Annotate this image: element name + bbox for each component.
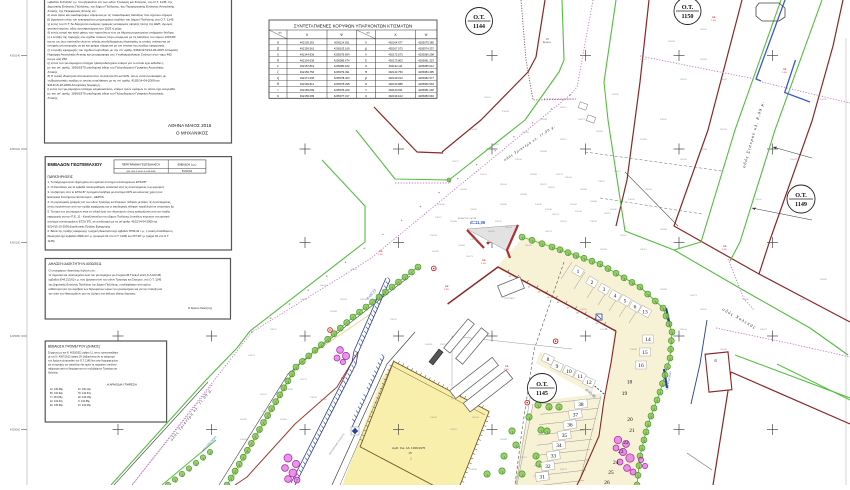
svg-text:22: 22 <box>623 440 629 446</box>
svg-text:135.04: 135.04 <box>505 227 512 229</box>
svg-text:όπως προκύπτουν από την πράξη: όπως προκύπτουν από την πράξη εφαρμογής … <box>48 205 175 209</box>
svg-text:134.69: 134.69 <box>458 245 465 247</box>
svg-text:492172.673: 492172.673 <box>388 52 403 56</box>
svg-text:2.5Ω: 2.5Ω <box>378 254 383 256</box>
svg-text:26: 26 <box>604 480 610 485</box>
svg-text:134.96: 134.96 <box>610 209 617 211</box>
svg-text:134.73: 134.73 <box>800 299 807 301</box>
svg-text:1. Το διάγραμμα είναι εξηρτη: 1. Το διάγραμμα είναι εξηρτημένο στο κρα… <box>48 180 148 184</box>
svg-text:134.85: 134.85 <box>320 399 327 401</box>
svg-text:134.91: 134.91 <box>320 285 327 287</box>
svg-text:134.91: 134.91 <box>628 199 635 201</box>
svg-text:1145: 1145 <box>536 390 548 397</box>
svg-text:134.96: 134.96 <box>742 299 749 301</box>
svg-text:18: 18 <box>627 380 633 386</box>
svg-text:ΔΕ: ΔΕ <box>341 376 345 380</box>
svg-text:1150: 1150 <box>681 13 693 20</box>
svg-text:Νομάρχη Ανατολικής Αττικής και: Νομάρχη Ανατολικής Αττικής και μεταγράφη… <box>48 52 173 56</box>
svg-text:12: 12 <box>586 380 592 386</box>
svg-text:492159.561: 492159.561 <box>300 46 315 50</box>
svg-text:134.69: 134.69 <box>502 111 509 113</box>
svg-text:ΑΣΦΑΛΤΟΣ - ΔΡΟΜ: ΑΣΦΑΛΤΟΣ - ΔΡΟΜ <box>458 217 477 220</box>
svg-text:Ελληνικού Συστήματος Εντοπισμο: Ελληνικού Συστήματος Εντοπισμού - HEPOS <box>48 195 104 199</box>
svg-text:134.85: 134.85 <box>640 139 647 141</box>
svg-text:τα αγροτικά και υλοποιημένα όρ: τα αγροτικά και υλοποιημένα όρια του γεω… <box>49 273 162 277</box>
svg-text:Ο.Τ.: Ο.Τ. <box>536 381 548 388</box>
svg-text:4205082.593: 4205082.593 <box>418 82 434 86</box>
svg-text:2.5Ω: 2.5Ω <box>444 289 449 291</box>
svg-text:Ζ= 130.10μ: Ζ= 130.10μ <box>78 388 91 391</box>
svg-text:31: 31 <box>540 474 546 480</box>
svg-text:38: 38 <box>578 402 584 408</box>
svg-text:134.91: 134.91 <box>492 144 499 146</box>
svg-text:135.01: 135.01 <box>495 221 502 223</box>
svg-text:21: 21 <box>629 428 635 434</box>
svg-text:492157.819: 492157.819 <box>300 64 315 68</box>
svg-text:ιδιοκτησία έχει εμβαδόν 6606,4: ιδιοκτησία έχει εμβαδόν 6606,44 τ.μ. (ει… <box>48 234 170 238</box>
svg-text:134.88: 134.88 <box>540 119 547 121</box>
svg-text:ΔΕ: ΔΕ <box>482 258 486 262</box>
svg-text:135.04: 135.04 <box>680 329 687 331</box>
svg-text:134.88: 134.88 <box>425 344 432 346</box>
svg-text:1144: 1144 <box>473 23 485 30</box>
svg-text:134.92: 134.92 <box>432 251 439 253</box>
svg-text:134.88: 134.88 <box>520 194 527 196</box>
svg-text:ΑΘΗΝΑ ΜΑΙΟΣ 2015: ΑΘΗΝΑ ΜΑΙΟΣ 2015 <box>168 123 212 128</box>
svg-text:4205080: 4205080 <box>10 334 21 338</box>
svg-text:135.01: 135.01 <box>680 79 687 81</box>
svg-text:16: 16 <box>638 363 644 369</box>
svg-text:19: 19 <box>622 391 628 397</box>
svg-text:εμβαδού Ε=8.213,62 τ.μ. που βρ: εμβαδού Ε=8.213,62 τ.μ. που βρίσκεται επ… <box>49 278 162 282</box>
svg-text:492139.281: 492139.281 <box>300 40 315 44</box>
svg-text:20: 20 <box>627 417 633 423</box>
svg-text:με την υπ' αριθμ. 1926/1975 οι: με την υπ' αριθμ. 1926/1975 οικοδομική ά… <box>48 66 165 70</box>
svg-text:134.91: 134.91 <box>450 429 457 431</box>
svg-text:492164.977: 492164.977 <box>388 40 403 44</box>
svg-text:134.91: 134.91 <box>488 231 495 233</box>
svg-text:134.88: 134.88 <box>330 311 337 313</box>
svg-text:εφαρμογής για την Π.Ε. 11 - Κα: εφαρμογής για την Π.Ε. 11 - Κανελλοπούλο… <box>48 215 170 219</box>
svg-text:134.73: 134.73 <box>690 295 697 297</box>
svg-text:4205100: 4205100 <box>10 241 21 245</box>
svg-text:υποχρέωση εισφοράς σε γη και χ: υποχρέωση εισφοράς σε γη και χρήμα σύμφω… <box>48 44 165 48</box>
svg-text:5: 5 <box>624 299 627 305</box>
svg-text:Ο.Τ.: Ο.Τ. <box>473 14 485 21</box>
svg-text:134.92: 134.92 <box>240 419 247 421</box>
svg-text:492134.636: 492134.636 <box>300 58 315 62</box>
svg-text:134.69: 134.69 <box>240 439 247 441</box>
svg-text:2.5Ω: 2.5Ω <box>340 381 345 383</box>
svg-text:134.92: 134.92 <box>820 99 827 101</box>
svg-text:134.88: 134.88 <box>590 201 597 203</box>
svg-text:ΔΗΛΩΣΗ ΙΔΙΟΚΤΗΤΗ Ν.4030/2011: ΔΗΛΩΣΗ ΙΔΙΟΚΤΗΤΗ Ν.4030/2011 <box>49 262 102 266</box>
svg-text:135.04: 135.04 <box>645 189 652 191</box>
svg-text:134.69: 134.69 <box>630 349 637 351</box>
svg-text:134.96: 134.96 <box>470 129 477 131</box>
svg-text:134.69: 134.69 <box>700 59 707 61</box>
svg-text:2.5Ω: 2.5Ω <box>504 369 509 371</box>
svg-text:134.88: 134.88 <box>500 439 507 441</box>
svg-text:μ: μ <box>365 46 367 50</box>
svg-text:135.01: 135.01 <box>525 245 532 247</box>
svg-text:492139.613: 492139.613 <box>388 76 403 80</box>
svg-text:135.01: 135.01 <box>600 329 607 331</box>
svg-text:4205075.298: 4205075.298 <box>334 82 350 86</box>
svg-text:492171.606: 492171.606 <box>300 76 315 80</box>
svg-text:24: 24 <box>613 460 619 466</box>
svg-text:4205079.491: 4205079.491 <box>334 70 350 74</box>
svg-text:134.69: 134.69 <box>668 41 675 43</box>
svg-text:σύστημα συντεταγμένων ΕΓΣΑ '87: σύστημα συντεταγμένων ΕΓΣΑ '87), σε συνδ… <box>48 219 158 223</box>
svg-text:135.12: 135.12 <box>560 139 567 141</box>
svg-text:ΔΕ: ΔΕ <box>505 364 509 368</box>
svg-text:β) βρίσκεται εντός του εγκεκρι: β) βρίσκεται εντός του εγκεκριμένου ρυμο… <box>48 18 174 22</box>
svg-text:ΠΕΡΙΓΡΑΜΜΑ ΓΕΩΤΕΜΑΧΙΟΥ: ΠΕΡΙΓΡΑΜΜΑ ΓΕΩΤΕΜΑΧΙΟΥ <box>122 162 161 166</box>
svg-text:134.91: 134.91 <box>720 129 727 131</box>
svg-text:4205077.317: 4205077.317 <box>334 94 350 98</box>
svg-text:134.85: 134.85 <box>470 209 477 211</box>
svg-text:134.92: 134.92 <box>430 235 437 237</box>
svg-text:ΔΕ: ΔΕ <box>379 249 383 253</box>
svg-text:15: 15 <box>642 350 648 356</box>
svg-text:9214/15-10-2009 Αποφάσεις Νομά: 9214/15-10-2009 Αποφάσεις Νομάρχη. <box>48 83 101 87</box>
svg-text:492143.750: 492143.750 <box>388 70 403 74</box>
svg-text:134.91: 134.91 <box>480 174 487 176</box>
svg-text:Ε= 135.96μ: Ε= 135.96μ <box>50 404 63 407</box>
svg-text:6. Βάσει της πράξης εφαρμογή: 6. Βάσει της πράξης εφαρμογής η αρχική ι… <box>48 229 173 233</box>
svg-text:ΠΑΡΑΤΗΡΗΣΕΙΣ: ΠΑΡΑΤΗΡΗΣΕΙΣ <box>48 175 73 179</box>
svg-text:134.88: 134.88 <box>660 229 667 231</box>
svg-text:Ερμίων: Ερμίων <box>543 41 552 44</box>
svg-text:της Δημοτικής Ενότητας Παλλήνη: της Δημοτικής Ενότητας Παλλήνης του Δήμο… <box>49 282 152 286</box>
svg-text:134.85: 134.85 <box>500 204 507 206</box>
svg-text:Σύμφωνα με τον Ν. 4030/2011 άρ: Σύμφωνα με τον Ν. 4030/2011 άρθρο 11, όπ… <box>48 352 119 355</box>
svg-text:1: 1 <box>577 269 580 275</box>
svg-text:2. Οι διαστάσεις και τα εμβα: 2. Οι διαστάσεις και τα εμβαδά υπολογίσθ… <box>48 185 165 189</box>
svg-text:4205060: 4205060 <box>10 428 21 432</box>
svg-text:ΔΕ: ΔΕ <box>445 284 449 288</box>
svg-text:134.92: 134.92 <box>720 79 727 81</box>
svg-text:134.73: 134.73 <box>466 256 473 258</box>
svg-text:4205140: 4205140 <box>10 54 21 58</box>
svg-text:134.96: 134.96 <box>470 239 477 241</box>
svg-text:134.91: 134.91 <box>560 221 567 223</box>
svg-text:4205120: 4205120 <box>10 147 21 151</box>
svg-text:8.213,62: 8.213,62 <box>182 169 193 173</box>
svg-text:3: 3 <box>603 287 606 293</box>
svg-text:135.01: 135.01 <box>484 97 491 99</box>
svg-text:135.12: 135.12 <box>440 344 447 346</box>
svg-text:σ: σ <box>365 82 367 86</box>
svg-text:β: β <box>277 46 279 50</box>
svg-text:492173.803: 492173.803 <box>388 58 403 62</box>
svg-text:134.88: 134.88 <box>540 151 547 153</box>
svg-text:135.04: 135.04 <box>472 417 479 419</box>
svg-text:Α= 130.68μ: Α= 130.68μ <box>50 388 63 391</box>
svg-text:134.73: 134.73 <box>556 174 563 176</box>
svg-text:135.04: 135.04 <box>680 159 687 161</box>
svg-text:4205078.403: 4205078.403 <box>334 76 350 80</box>
svg-text:134.96: 134.96 <box>700 149 707 151</box>
svg-text:4205114.051: 4205114.051 <box>334 40 350 44</box>
svg-text:135.12: 135.12 <box>604 213 611 215</box>
svg-text:135.04: 135.04 <box>575 211 582 213</box>
svg-text:Δημοτικής Ενότητας Παλλήνης, τ: Δημοτικής Ενότητας Παλλήνης, του Δήμου Π… <box>48 5 175 9</box>
svg-text:134.96: 134.96 <box>300 299 307 301</box>
svg-text:3. Η εξάρτηση από το ΕΓΣΑ 87: 3. Η εξάρτηση από το ΕΓΣΑ 87 πραγματοποι… <box>48 190 163 194</box>
svg-text:32: 32 <box>545 464 551 470</box>
svg-text:134.73: 134.73 <box>578 119 585 121</box>
svg-text:ΕΜΒΑΔΟΝ ΓΕΩΤΕΜΑΧΙΟΥ: ΕΜΒΑΔΟΝ ΓΕΩΤΕΜΑΧΙΟΥ <box>48 162 103 167</box>
svg-text:134.85: 134.85 <box>820 279 827 281</box>
svg-text:34: 34 <box>556 443 562 449</box>
svg-text:και οι κορυφές του οικοπέδου θ: και οι κορυφές του οικοπέδου θα έχουν τα… <box>48 364 117 367</box>
svg-text:135.01: 135.01 <box>755 199 762 201</box>
svg-text:α: α <box>277 40 279 44</box>
svg-text:ΔΕ: ΔΕ <box>783 67 787 71</box>
svg-text:23: 23 <box>618 449 624 455</box>
svg-text:134.85: 134.85 <box>660 289 667 291</box>
svg-text:135.12: 135.12 <box>760 329 767 331</box>
svg-text:6: 6 <box>634 305 637 311</box>
svg-text:135.01: 135.01 <box>262 411 269 413</box>
svg-text:134.92: 134.92 <box>310 397 317 399</box>
svg-text:135.12: 135.12 <box>520 457 527 459</box>
svg-text:492133.811: 492133.811 <box>389 88 404 92</box>
svg-text:4205085.674: 4205085.674 <box>334 58 350 62</box>
svg-text:134.85: 134.85 <box>596 131 603 133</box>
svg-text:την αιτία των δικαιωμάτων μου: την αιτία των δικαιωμάτων μου να ζητήσω … <box>49 292 137 296</box>
svg-text:134.85: 134.85 <box>535 204 542 206</box>
svg-text:καθιστώμαι για την ακρίβεια τω: καθιστώμαι για την ακρίβεια των δηλουμέν… <box>49 287 163 291</box>
svg-text:2.5Ω: 2.5Ω <box>711 20 716 22</box>
svg-text:36: 36 <box>567 423 573 429</box>
svg-text:134.96: 134.96 <box>460 189 467 191</box>
svg-text:ΔΕ: ΔΕ <box>723 244 727 248</box>
svg-text:492144.836: 492144.836 <box>300 52 315 56</box>
svg-text:134.69: 134.69 <box>790 159 797 161</box>
svg-text:9: 9 <box>556 364 559 370</box>
svg-text:υψόμετρα κατά τη διαμόρφωση τω: υψόμετρα κατά τη διαμόρφωση των πεζοδρόμ… <box>48 368 117 371</box>
svg-text:25: 25 <box>608 470 614 476</box>
svg-text:135.04: 135.04 <box>350 269 357 271</box>
svg-text:η) εντός του γεωτεμαχίου υπάρχ: η) εντός του γεωτεμαχίου υπάρχει ηλεκτρο… <box>48 61 164 65</box>
svg-text:492169.756: 492169.756 <box>300 70 315 74</box>
svg-text:135.01: 135.01 <box>552 214 559 216</box>
svg-text:134.92: 134.92 <box>620 235 627 237</box>
svg-text:135.04: 135.04 <box>515 159 522 161</box>
svg-text:4205082.577: 4205082.577 <box>418 76 434 80</box>
svg-text:134.69: 134.69 <box>570 204 577 206</box>
svg-text:υ: υ <box>365 94 367 98</box>
svg-text:134.73: 134.73 <box>248 355 255 357</box>
svg-text:134.69: 134.69 <box>600 249 607 251</box>
svg-text:4. Οι ρυμοτομικές γραμμές επ: 4. Οι ρυμοτομικές γραμμές επί των οδών Τ… <box>48 200 172 204</box>
svg-text:η: η <box>277 76 279 80</box>
svg-text:492156.099: 492156.099 <box>300 94 315 98</box>
svg-text:των δρόμων έμπροσθεν του Ο.Τ.: των δρόμων έμπροσθεν του Ο.Τ. 1145 δεν ε… <box>48 360 118 363</box>
svg-text:4205074.337: 4205074.337 <box>418 46 434 50</box>
svg-text:134.88: 134.88 <box>720 349 727 351</box>
svg-text:134.91: 134.91 <box>700 309 707 311</box>
svg-text:ΥΠΟΣΤΕΓΟ: ΥΠΟΣΤΕΓΟ <box>504 298 515 300</box>
svg-text:492132.111: 492132.111 <box>389 64 403 68</box>
svg-text:492159.099: 492159.099 <box>300 88 315 92</box>
svg-text:134.88: 134.88 <box>450 221 457 223</box>
svg-text:134.73: 134.73 <box>614 171 621 173</box>
svg-text:Αττικής.: Αττικής. <box>48 96 59 100</box>
svg-text:9214/15-10-2009 Διορθωτικές Πρ: 9214/15-10-2009 Διορθωτικές Πράξεις Εφαρ… <box>48 224 111 228</box>
svg-text:492169.814: 492169.814 <box>300 82 315 86</box>
svg-text:135.01: 135.01 <box>260 394 267 396</box>
svg-text:33: 33 <box>551 454 557 460</box>
svg-text:4205080.298: 4205080.298 <box>418 52 434 56</box>
svg-text:5. Τα όρια των γεωτεμαχίων ε: 5. Τα όρια των γεωτεμαχίων είναι τα τελι… <box>48 210 171 214</box>
svg-text:Ι= 134.86μ: Ι= 134.86μ <box>78 400 90 403</box>
svg-text:4205075.385: 4205075.385 <box>418 40 434 44</box>
svg-text:4205103.169: 4205103.169 <box>334 46 350 50</box>
svg-text:1145).: 1145). <box>48 239 56 243</box>
svg-text:135.01: 135.01 <box>640 59 647 61</box>
svg-text:134.85: 134.85 <box>286 389 293 391</box>
svg-text:θ) Η τελική ιδιοκτησία αποτελε: θ) Η τελική ιδιοκτησία αποτελείται από τ… <box>48 74 167 78</box>
svg-text:ρ: ρ <box>365 76 367 80</box>
svg-text:135.12: 135.12 <box>540 184 547 186</box>
svg-text:135.12: 135.12 <box>435 217 442 219</box>
svg-text:135.01: 135.01 <box>660 119 667 121</box>
svg-text:4205076.229: 4205076.229 <box>334 88 350 92</box>
svg-text:135.12: 135.12 <box>270 329 277 331</box>
svg-text:134.96: 134.96 <box>530 174 537 176</box>
svg-text:135.04: 135.04 <box>500 184 507 186</box>
svg-text:8: 8 <box>547 357 550 363</box>
svg-text:11: 11 <box>577 374 582 380</box>
svg-text:Η ΑΡΜΟΔΙΑ ΥΠΗΡΕΣΙΑ: Η ΑΡΜΟΔΙΑ ΥΠΗΡΕΣΙΑ <box>107 383 137 387</box>
svg-text:με τον Ν. 4067/2012 άρθρο 29,: με τον Ν. 4067/2012 άρθρο 29, βεβαιώνετα… <box>48 356 115 359</box>
svg-text:d=11,06: d=11,06 <box>470 220 486 225</box>
svg-text:10: 10 <box>566 369 572 375</box>
svg-text:4205084.395: 4205084.395 <box>418 70 434 74</box>
svg-text:134.85: 134.85 <box>470 469 477 471</box>
svg-text:134.69: 134.69 <box>438 204 445 206</box>
svg-text:Ο υπογράφων ιδιοκτήτης δηλώνω: Ο υπογράφων ιδιοκτήτης δηλώνω ότι : <box>49 269 97 273</box>
svg-text:α) είναι άρτιο και οικοδομήσιμ: α) είναι άρτιο και οικοδομήσιμο σύμφωνα … <box>48 13 173 17</box>
svg-text:134.96: 134.96 <box>430 417 437 419</box>
svg-text:13: 13 <box>642 310 648 316</box>
svg-text:134.88: 134.88 <box>580 189 587 191</box>
svg-text:135.12: 135.12 <box>640 249 647 251</box>
svg-text:2: 2 <box>591 280 594 286</box>
svg-text:ΔΕ: ΔΕ <box>712 15 716 19</box>
svg-text:δ: δ <box>277 58 279 62</box>
svg-text:4205080.642: 4205080.642 <box>334 64 350 68</box>
svg-text:4205081.323: 4205081.323 <box>418 58 434 62</box>
svg-text:Θ= 134.45μ: Θ= 134.45μ <box>78 396 92 399</box>
svg-text:ΣΥΝΤΕΤΑΓΜΕΝΕΣ ΚΟΡΥΦΩΝ ΥΠΑΡΧΟΝΤ: ΣΥΝΤΕΤΑΓΜΕΝΕΣ ΚΟΡΥΦΩΝ ΥΠΑΡΧΟΝΤΩΝ ΚΤΙΣΜΑΤ… <box>294 23 412 28</box>
svg-text:ο: ο <box>365 64 367 68</box>
svg-text:492133.888: 492133.888 <box>388 82 403 86</box>
svg-text:φυσικού αερίου, οδός προϋφιστά: φυσικού αερίου, οδός προϋφιστάμενη του 1… <box>48 26 123 30</box>
svg-text:(Β-Γ-Δ-Ε-Ζ-Η-Θ-Ι-Κ-Λ-Μ-Ν-Β): (Β-Γ-Δ-Ε-Ζ-Η-Θ-Ι-Κ-Λ-Μ-Ν-Β) <box>127 170 156 173</box>
svg-text:Ο.Τ.: Ο.Τ. <box>682 4 694 11</box>
svg-text:134.91: 134.91 <box>390 319 397 321</box>
svg-text:4205085.012: 4205085.012 <box>418 64 434 68</box>
svg-text:4205081.248: 4205081.248 <box>418 88 434 92</box>
svg-text:Δ= 134.67μ: Δ= 134.67μ <box>50 400 63 403</box>
svg-text:2.5Ω: 2.5Ω <box>722 249 727 251</box>
svg-text:Ψ: Ψ <box>425 33 428 37</box>
svg-text:134.92: 134.92 <box>590 221 597 223</box>
svg-text:Ο ΜΗΧΑΝΙΚΟΣ: Ο ΜΗΧΑΝΙΚΟΣ <box>176 131 208 136</box>
svg-text:1149: 1149 <box>795 201 807 208</box>
svg-text:134.91: 134.91 <box>548 187 555 189</box>
svg-text:134.92: 134.92 <box>580 309 587 311</box>
svg-text:Β= 132.92μ: Β= 132.92μ <box>50 392 63 395</box>
svg-text:1Π: 1Π <box>408 451 411 455</box>
svg-text:134.73: 134.73 <box>300 379 307 381</box>
svg-text:4205083.694: 4205083.694 <box>418 94 434 98</box>
svg-text:2.5Ω: 2.5Ω <box>782 72 787 74</box>
svg-text:Γ= 133.65μ: Γ= 133.65μ <box>50 396 63 399</box>
svg-text:492139.102: 492139.102 <box>388 94 403 98</box>
svg-text:θ: θ <box>277 82 279 86</box>
svg-text:134.73: 134.73 <box>545 231 552 233</box>
svg-text:ΒΕΒΑΙΩΣΗ ΥΨΟΜΕΤΡΟΥ (ΔΗΜΟΣ): ΒΕΒΑΙΩΣΗ ΥΨΟΜΕΤΡΟΥ (ΔΗΜΟΣ) <box>48 345 100 349</box>
svg-text:135.12: 135.12 <box>598 181 605 183</box>
svg-text:Ψ: Ψ <box>340 33 343 37</box>
svg-text:134.92: 134.92 <box>612 94 619 96</box>
svg-text:ΕΜΒΑΔΟΝ (τ.μ.): ΕΜΒΑΔΟΝ (τ.μ.) <box>178 163 197 166</box>
svg-text:Αριθ. Οικ. Αδ. 1936/1975: Αριθ. Οικ. Αδ. 1936/1975 <box>392 446 426 450</box>
svg-text:Ο.Τ.: Ο.Τ. <box>795 192 807 199</box>
svg-text:135.04: 135.04 <box>565 177 572 179</box>
svg-text:134.85: 134.85 <box>522 132 529 134</box>
svg-text:492167.073: 492167.073 <box>388 46 403 50</box>
svg-text:Χαλέπας: Χαλέπας <box>48 372 59 375</box>
svg-text:37: 37 <box>573 412 579 418</box>
svg-text:134.73: 134.73 <box>452 161 459 163</box>
svg-text:Κ= 134.45μ: Κ= 134.45μ <box>78 404 91 407</box>
svg-text:135.12: 135.12 <box>560 107 567 109</box>
svg-text:4205075.834: 4205075.834 <box>334 52 350 56</box>
svg-text:ε) ε.εντάξη της παροχής στο σχ: ε) ε.εντάξη της παροχής στο σχέδιο πόλεω… <box>48 35 176 39</box>
svg-text:4: 4 <box>614 294 617 300</box>
svg-text:Η= 132.67μ: Η= 132.67μ <box>78 392 92 395</box>
svg-text:2.5Ω: 2.5Ω <box>481 263 486 265</box>
svg-text:Ο δηλών ιδιοκτήτης: Ο δηλών ιδιοκτήτης <box>188 306 213 310</box>
svg-text:134.96: 134.96 <box>545 209 552 211</box>
svg-text:35: 35 <box>562 433 568 439</box>
svg-text:με την υπ' αριθμ. 1926/1975 οι: με την υπ' αριθμ. 1926/1975 οικοδομική ά… <box>48 92 165 96</box>
svg-text:134.73: 134.73 <box>560 469 567 471</box>
svg-text:134.69: 134.69 <box>280 419 287 421</box>
svg-text:135.04: 135.04 <box>340 299 347 301</box>
svg-text:134.92: 134.92 <box>700 29 707 31</box>
svg-text:14: 14 <box>645 337 651 343</box>
